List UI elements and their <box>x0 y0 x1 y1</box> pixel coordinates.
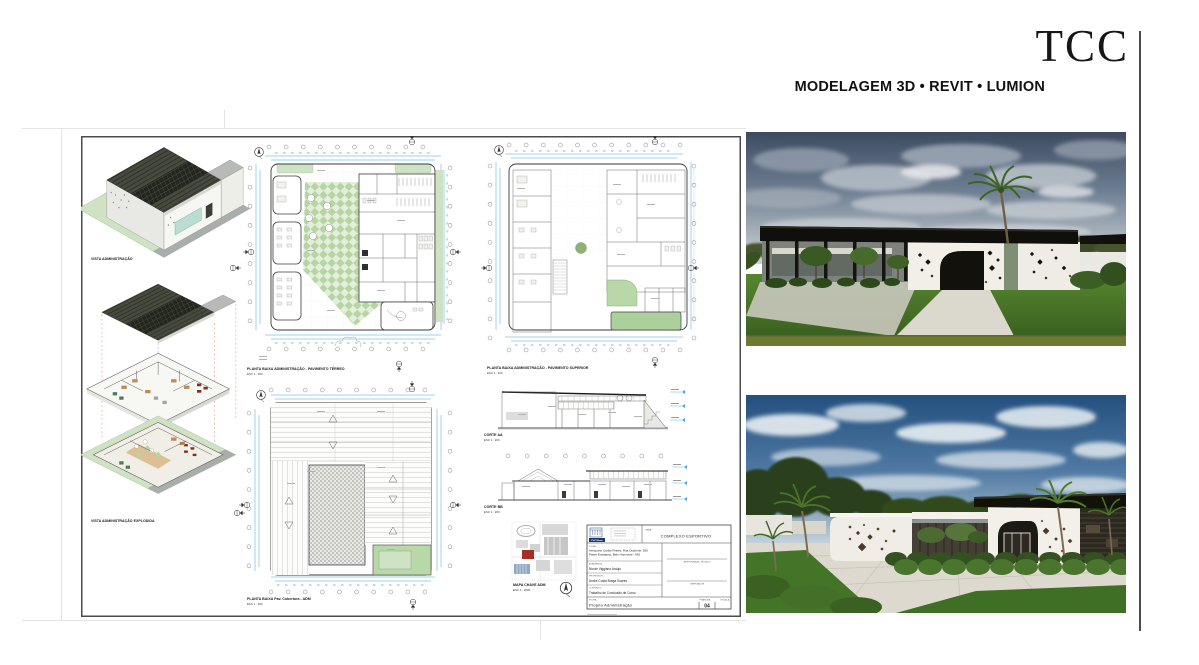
section-bb-scale: ESC 1 : 200 <box>484 510 500 514</box>
green-walk <box>607 280 637 306</box>
road-strip <box>746 335 1126 346</box>
page-title: TCC <box>955 24 1129 69</box>
academico-name: Nicole Viggiano Araújo <box>589 567 621 571</box>
pergola-hatch <box>309 465 365 565</box>
address-line2: Padre Eustáquio, Belo Horizonte - MG <box>589 553 641 557</box>
key-map-title: MAPA CHAVE ADM <box>513 583 546 587</box>
title-block: PUC Minas OBRA COMPLEXO ESPORTIVO LOCAL … <box>587 525 731 615</box>
key-map-scale: ESC 1 : 2000 <box>513 588 531 592</box>
local-label: LOCAL <box>589 545 597 548</box>
page-subtitle: MODELAGEM 3D • REVIT • LUMION <box>775 79 1045 95</box>
prancha-label: PRANCHA <box>700 599 711 602</box>
professor-name: André Costa Braga Soares <box>589 579 628 583</box>
plan-superior-scale: ESC 1 : 200 <box>487 371 503 375</box>
divider-rule <box>1139 31 1141 631</box>
plan-cobertura-scale: ESC 1 : 200 <box>247 602 263 606</box>
escala-label: ESCALA <box>721 599 730 602</box>
guide-line <box>224 110 225 128</box>
arch-opening <box>940 251 984 290</box>
axon-exploded-label: VISTA ADMINISTRAÇÃO EXPLODIDA <box>91 518 155 523</box>
architecture-sheet: VISTA ADMINISTRAÇÃO <box>81 136 741 617</box>
green-terrace <box>611 312 681 330</box>
render-exterior-entrance <box>746 395 1126 613</box>
section-aa-scale: ESC 1 : 200 <box>484 438 500 442</box>
footnote-line <box>587 614 617 615</box>
guide-line <box>22 128 746 129</box>
project-name: COMPLEXO ESPORTIVO <box>661 534 712 539</box>
section-bb-title: CORTE BB <box>484 505 503 509</box>
guide-line <box>61 128 62 621</box>
portfolio-page: TCC MODELAGEM 3D • REVIT • LUMION <box>0 0 1199 665</box>
key-map: MAPA CHAVE ADM ESC 1 : 2000 <box>512 522 576 597</box>
academico-label: ACADÊMICA <box>589 563 603 566</box>
plan-superior-title: PLANTA BAIXA ADMINISTRAÇÃO - PAVIMENTO S… <box>487 365 589 370</box>
folha-title: Projeto Administração <box>589 603 633 608</box>
plan-terreo-title: PLANTA BAIXA ADMINISTRAÇÃO - PAVIMENTO T… <box>247 366 345 371</box>
render-exterior-front <box>746 132 1126 346</box>
axon-view-label: VISTA ADMINISTRAÇÃO <box>91 256 133 261</box>
assinatura-label: RESPONSÁVEL TÉCNICO <box>684 560 711 563</box>
professor-label: PROFESSOR <box>589 576 603 578</box>
sheet-number: 04 <box>704 604 710 610</box>
tree-plan-icon <box>576 243 587 254</box>
folha-label: FOLHA <box>589 599 597 602</box>
guide-line <box>540 620 541 640</box>
highlighted-building <box>522 550 534 559</box>
obra-label: OBRA <box>645 529 652 532</box>
plan-terreo-scale: ESC 1 : 200 <box>247 372 263 376</box>
hedges <box>885 552 1126 575</box>
plan-cobertura-title: PLANTA BAIXA Pav. Cobertura - ADM <box>247 597 311 601</box>
conteudo-value: Trabalho de Conclusão de Curso <box>589 591 636 595</box>
orientador-label: ORIENTADOR <box>690 582 705 585</box>
conteudo-label: CONTEÚDO <box>589 587 602 590</box>
section-aa-title: CORTE AA <box>484 433 503 437</box>
guide-line <box>22 620 746 621</box>
logo-text: PUC Minas <box>591 540 603 542</box>
